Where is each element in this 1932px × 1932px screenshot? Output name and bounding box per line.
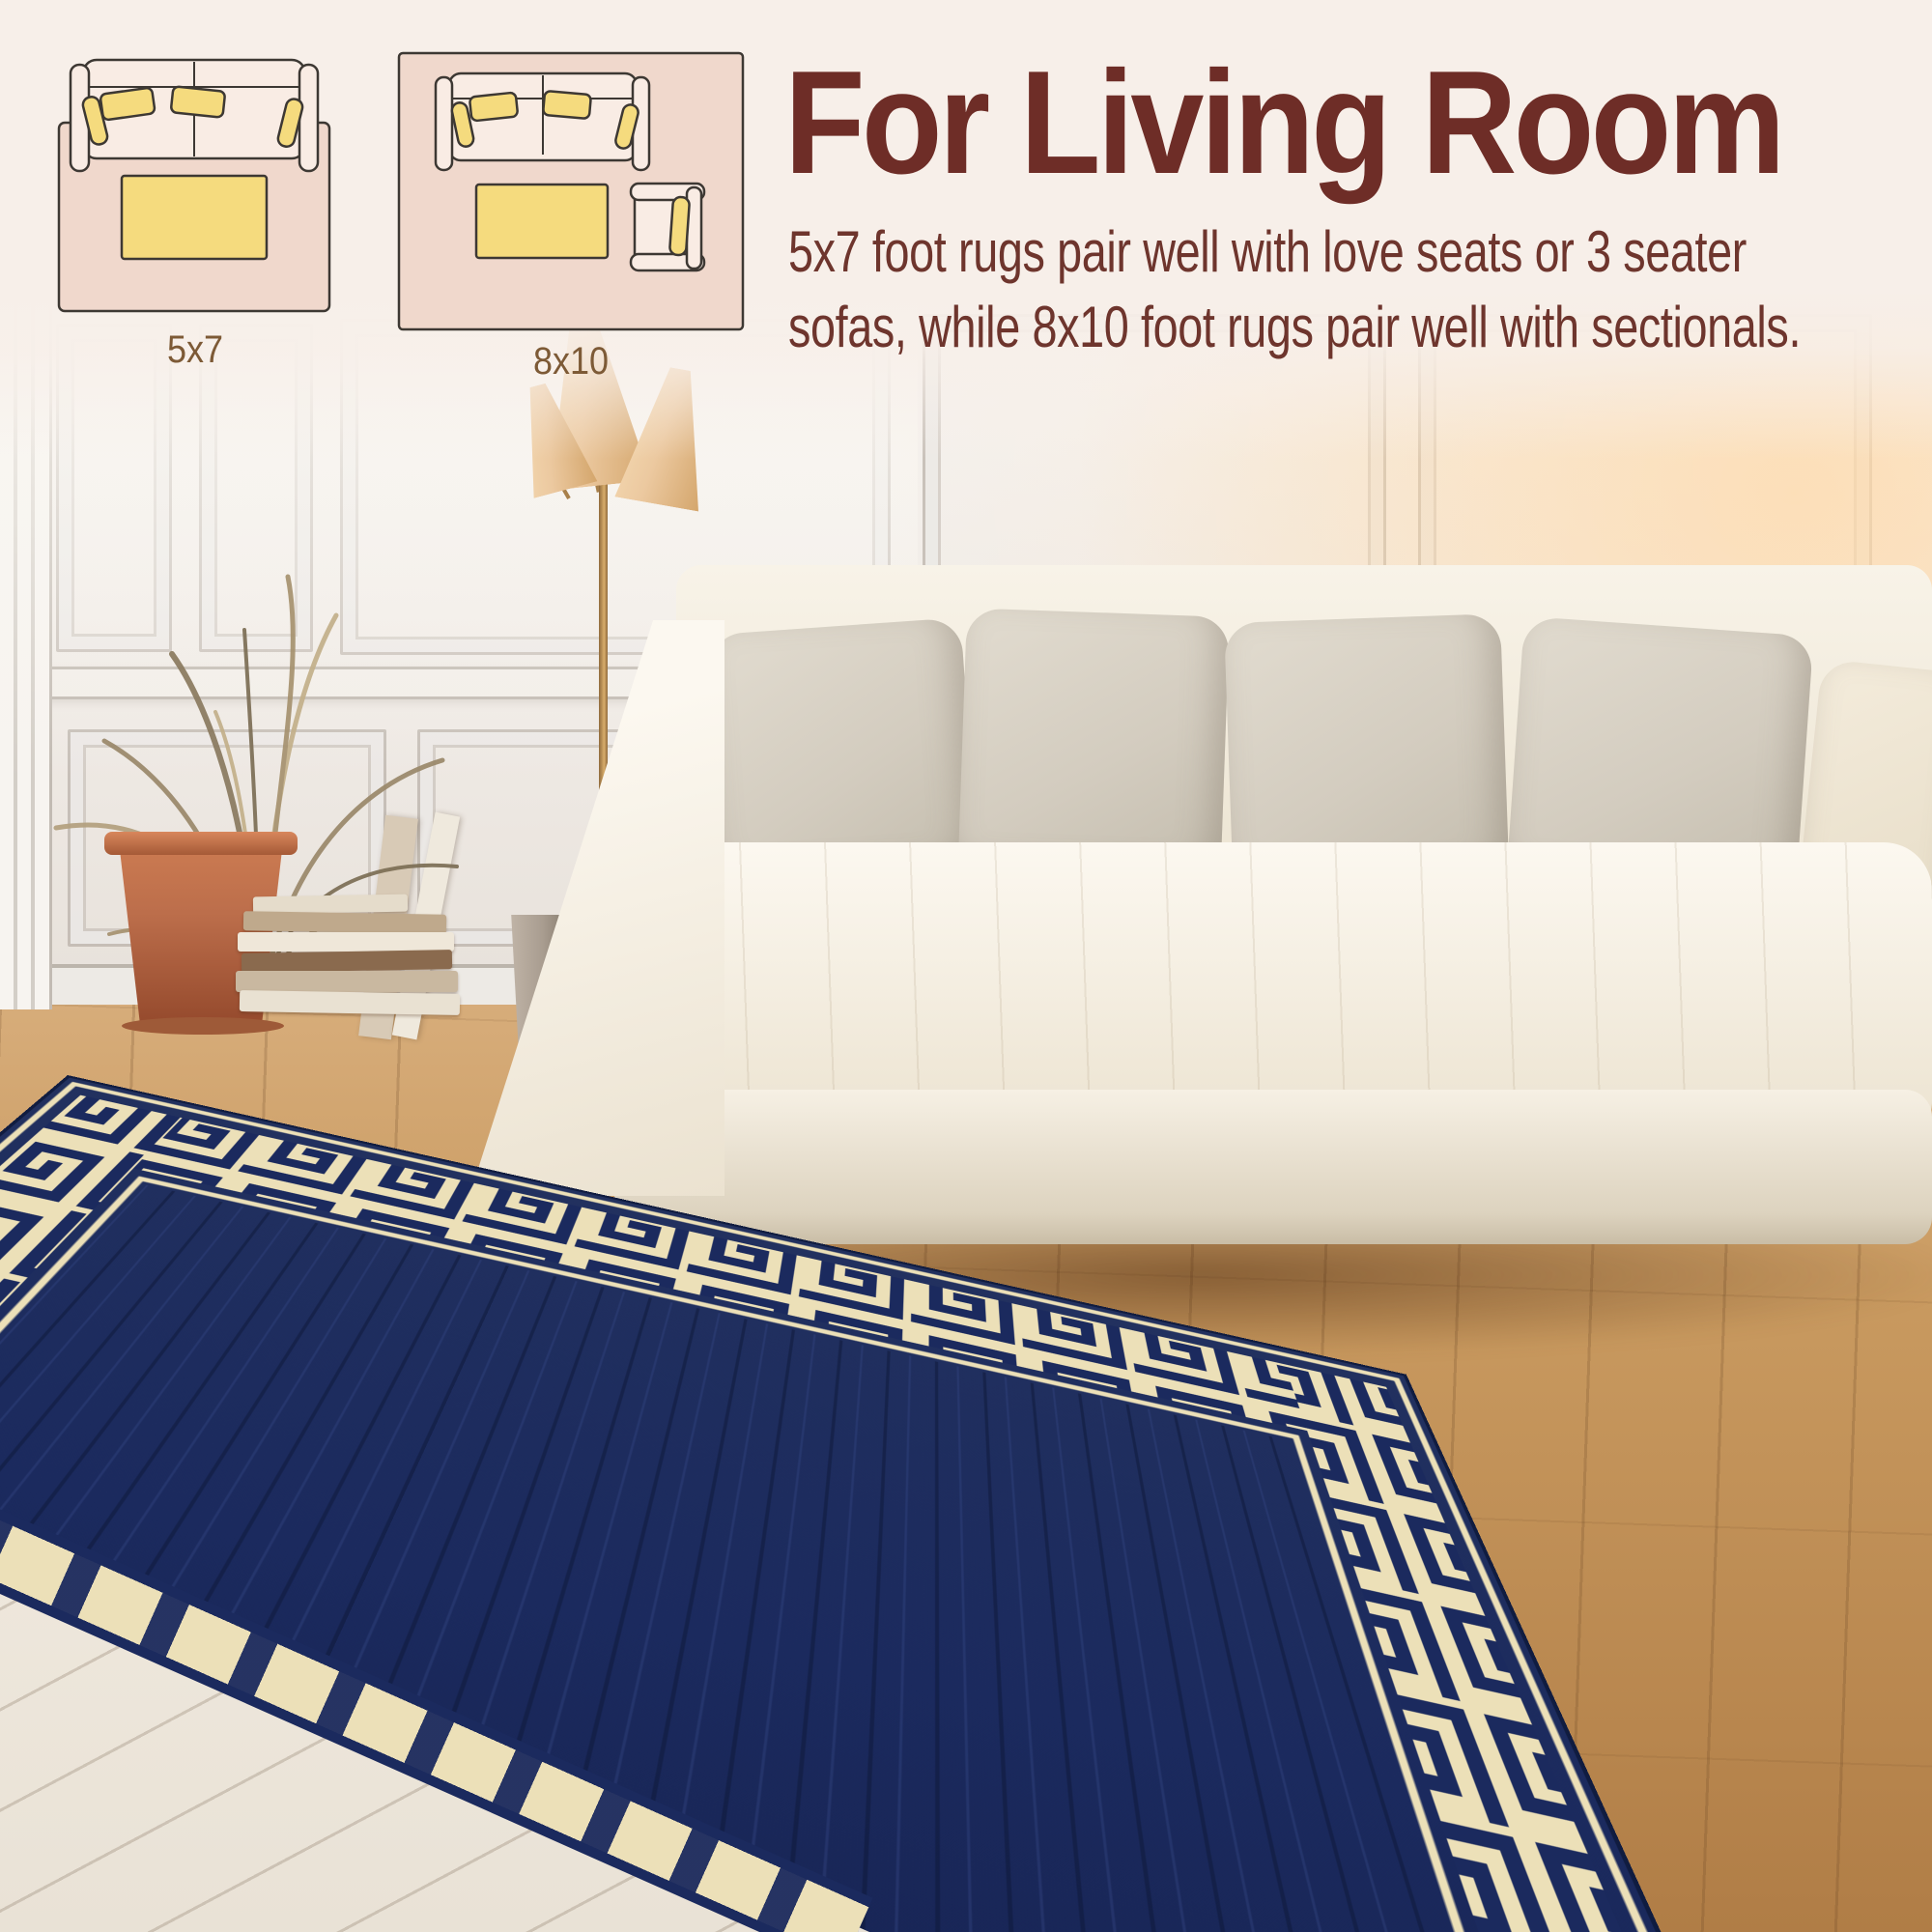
sofa-base — [614, 1090, 1932, 1244]
terracotta-pot-rim — [104, 832, 298, 855]
description-line: sofas, while 8x10 foot rugs pair well wi… — [788, 290, 1801, 365]
diagram-label-5x7: 5x7 — [143, 328, 247, 372]
living-room-photo — [0, 275, 1932, 1932]
rug-size-diagram-8x10 — [382, 46, 758, 336]
page-title: For Living Room — [784, 39, 1782, 208]
page-description: 5x7 foot rugs pair well with love seats … — [788, 214, 1801, 365]
book — [238, 932, 454, 952]
book — [240, 990, 460, 1015]
pot-saucer — [122, 1017, 284, 1035]
diagram-label-8x10: 8x10 — [510, 340, 632, 384]
description-line: 5x7 foot rugs pair well with love seats … — [788, 214, 1801, 290]
book — [241, 950, 452, 973]
floor-lamp-pole — [599, 480, 608, 804]
book — [236, 971, 458, 992]
product-infographic: For Living Room 5x7 foot rugs pair well … — [0, 0, 1932, 1932]
rug-size-diagram-5x7 — [46, 50, 346, 321]
book — [243, 911, 446, 934]
